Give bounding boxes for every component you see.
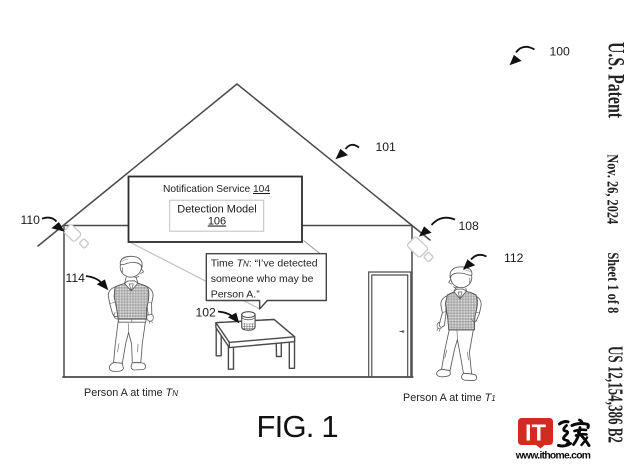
svg-text:www.ithome.com: www.ithome.com <box>515 451 591 462</box>
svg-text:100: 100 <box>550 45 571 59</box>
svg-text:US 12,154,386 B2: US 12,154,386 B2 <box>603 346 627 443</box>
svg-text:101: 101 <box>376 140 397 154</box>
svg-text:U.S. Patent: U.S. Patent <box>602 42 628 118</box>
svg-text:FIG. 1: FIG. 1 <box>257 409 338 444</box>
svg-text:Sheet 1 of 8: Sheet 1 of 8 <box>604 252 622 313</box>
svg-text:Time TN: “I’ve detected: Time TN: “I’ve detected <box>211 258 318 270</box>
svg-text:IT: IT <box>525 420 547 446</box>
svg-text:106: 106 <box>208 216 226 228</box>
svg-text:Notification Service 104: Notification Service 104 <box>163 184 270 195</box>
svg-text:someone who may be: someone who may be <box>211 273 314 285</box>
svg-text:102: 102 <box>196 306 217 320</box>
svg-text:Person A at time T1: Person A at time T1 <box>403 392 496 404</box>
svg-text:Person A.”: Person A.” <box>211 289 261 301</box>
svg-text:Nov. 26, 2024: Nov. 26, 2024 <box>603 154 620 224</box>
svg-text:112: 112 <box>504 251 524 265</box>
svg-text:110: 110 <box>21 213 41 227</box>
svg-text:114: 114 <box>66 271 86 285</box>
svg-text:Detection Model: Detection Model <box>177 204 257 216</box>
svg-text:Person A at time TN: Person A at time TN <box>84 387 178 399</box>
svg-text:108: 108 <box>459 219 480 233</box>
